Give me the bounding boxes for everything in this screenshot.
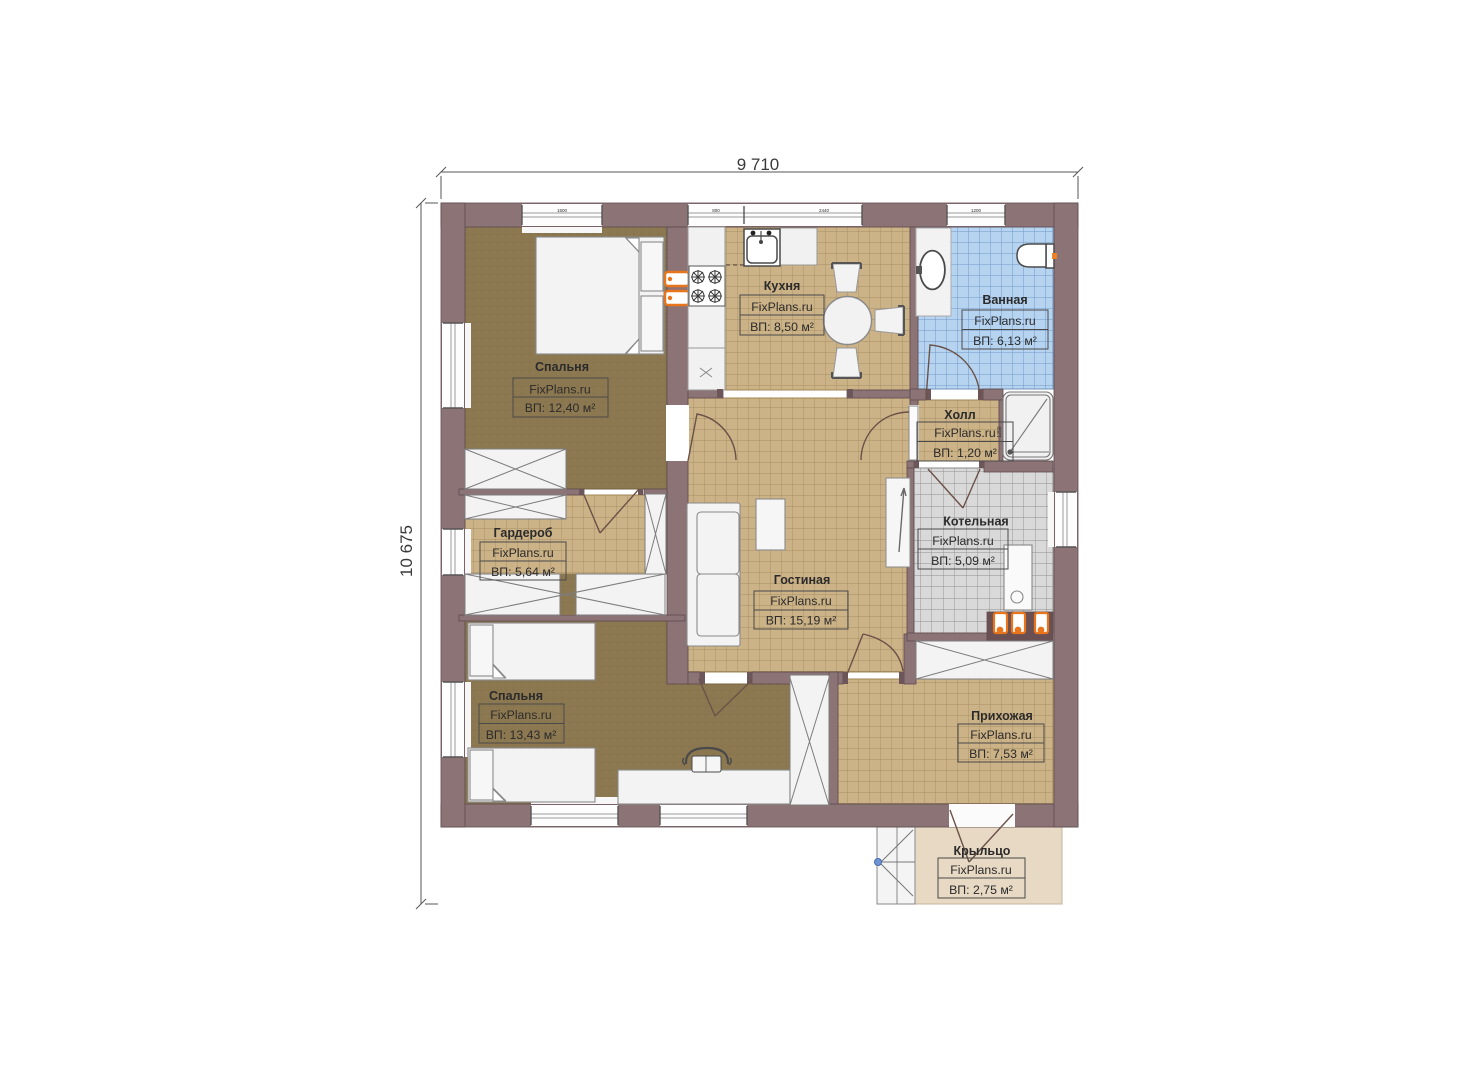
svg-text:Крыльцо: Крыльцо: [954, 844, 1011, 858]
svg-text:FixPlans.ru: FixPlans.ru: [932, 534, 994, 548]
svg-text:9 710: 9 710: [737, 155, 780, 174]
svg-text:Гардероб: Гардероб: [493, 526, 552, 540]
svg-text:Спальня: Спальня: [535, 360, 589, 374]
svg-text:1200: 1200: [971, 208, 982, 213]
svg-text:Котельная: Котельная: [943, 515, 1008, 529]
svg-text:Холл: Холл: [944, 408, 975, 422]
svg-text:ВП: 1,20 м²: ВП: 1,20 м²: [933, 446, 997, 460]
svg-text:800: 800: [712, 208, 720, 213]
svg-text:ВП: 12,40 м²: ВП: 12,40 м²: [525, 401, 596, 415]
svg-text:FixPlans.ru: FixPlans.ru: [529, 383, 591, 397]
svg-text:FixPlans.ru: FixPlans.ru: [490, 708, 552, 722]
svg-text:Прихожая: Прихожая: [971, 709, 1033, 723]
svg-text:ВП: 15,19 м²: ВП: 15,19 м²: [766, 614, 837, 628]
svg-text:ВП: 13,43 м²: ВП: 13,43 м²: [486, 728, 557, 742]
svg-text:1250: 1250: [997, 426, 1003, 437]
svg-text:ВП: 6,13 м²: ВП: 6,13 м²: [973, 334, 1037, 348]
svg-text:ВП: 7,53 м²: ВП: 7,53 м²: [969, 747, 1033, 761]
svg-text:ВП: 5,09 м²: ВП: 5,09 м²: [931, 554, 995, 568]
svg-text:2440: 2440: [819, 208, 830, 213]
svg-text:FixPlans.ru: FixPlans.ru: [751, 300, 813, 314]
svg-text:ВП: 5,64 м²: ВП: 5,64 м²: [491, 565, 555, 579]
svg-text:Ванная: Ванная: [982, 293, 1027, 307]
svg-text:FixPlans.ru: FixPlans.ru: [970, 728, 1032, 742]
svg-text:Кухня: Кухня: [764, 279, 801, 293]
svg-text:1500: 1500: [557, 208, 568, 213]
svg-text:ВП: 2,75 м²: ВП: 2,75 м²: [949, 883, 1013, 897]
svg-text:ВП: 8,50 м²: ВП: 8,50 м²: [750, 320, 814, 334]
svg-text:FixPlans.ru: FixPlans.ru: [492, 546, 554, 560]
svg-text:FixPlans.ru: FixPlans.ru: [950, 863, 1012, 877]
svg-text:FixPlans.ru: FixPlans.ru: [770, 594, 832, 608]
svg-text:Спальня: Спальня: [489, 689, 543, 703]
svg-text:10 675: 10 675: [397, 525, 416, 577]
svg-text:FixPlans.ru: FixPlans.ru: [934, 426, 996, 440]
svg-text:Гостиная: Гостиная: [774, 573, 831, 587]
svg-text:FixPlans.ru: FixPlans.ru: [974, 314, 1036, 328]
